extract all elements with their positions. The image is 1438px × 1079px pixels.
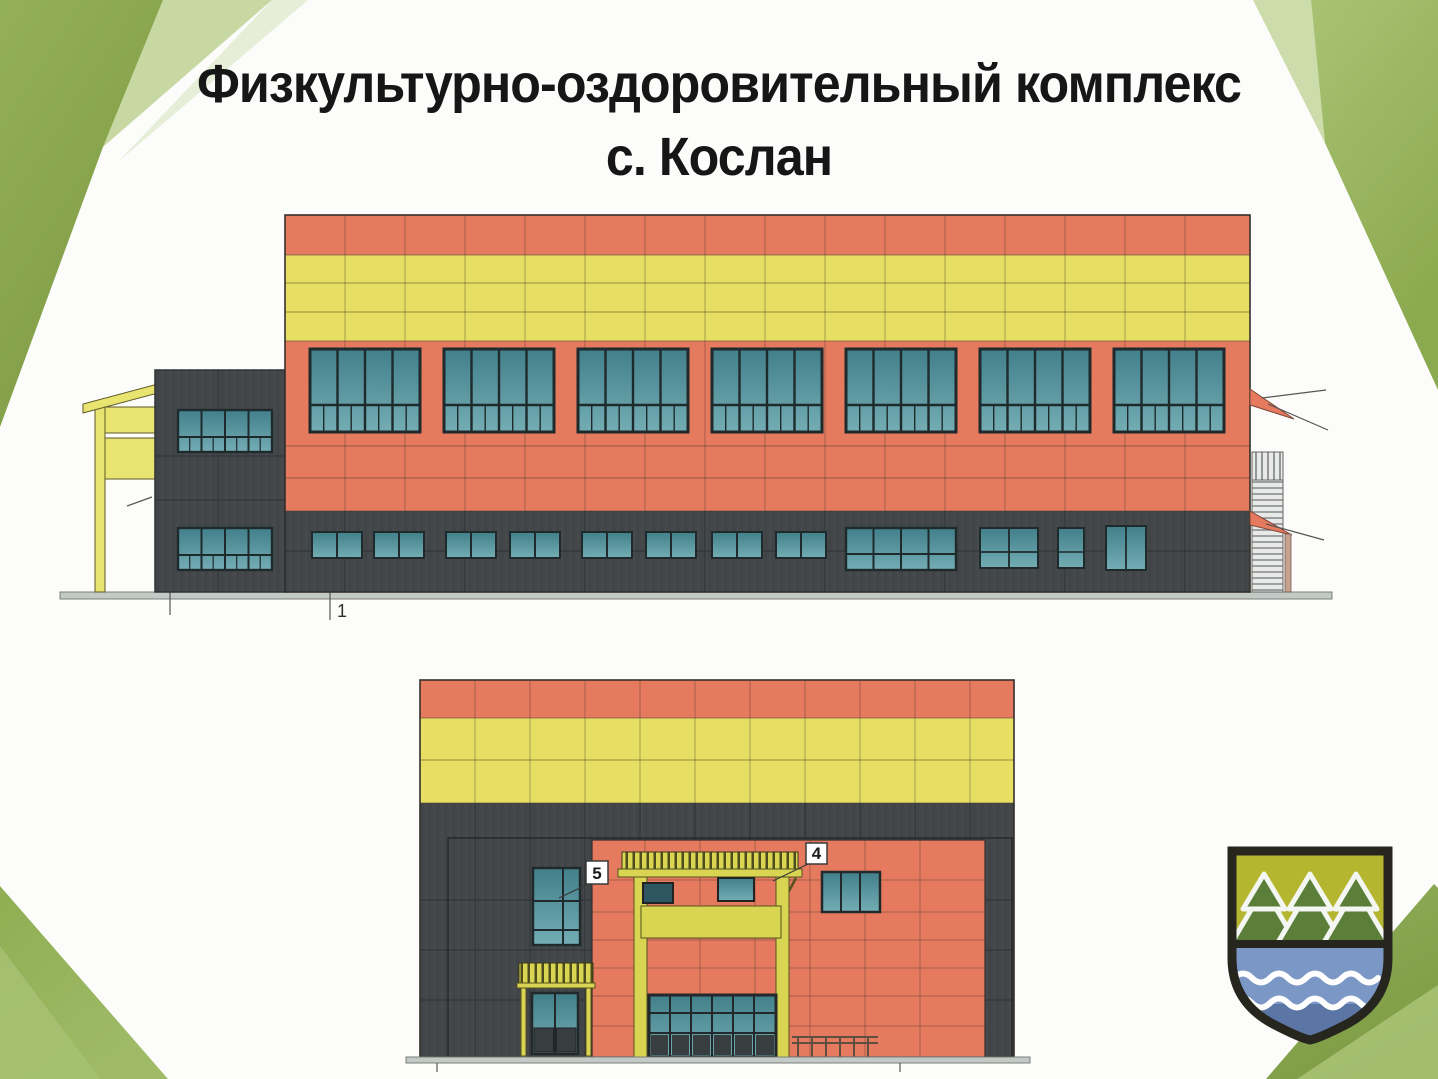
external-stair-tower [1250, 389, 1328, 592]
front-elevation-drawing: 5 4 [406, 680, 1030, 1072]
small-window [718, 878, 754, 901]
axis-marker-1: 1 [337, 601, 347, 621]
window [178, 410, 272, 452]
slide-title-line1: Физкультурно-оздоровительный комплекс [50, 48, 1387, 121]
leader-line [1268, 404, 1328, 430]
side-elevation-drawing: 1 [60, 215, 1332, 621]
window [980, 349, 1090, 432]
downpipe [1285, 534, 1291, 592]
leader-line [1262, 390, 1326, 398]
window [822, 872, 880, 912]
portal-post-right [776, 877, 789, 1057]
stair-top [1252, 452, 1283, 480]
window [1058, 528, 1084, 568]
window [374, 532, 424, 558]
koslan-coat-of-arms [1231, 851, 1389, 1046]
emblem-divider [1232, 940, 1388, 948]
porch-beam [105, 407, 155, 433]
facade-yellow-band [285, 255, 1250, 341]
annex-block [155, 370, 285, 592]
facade-orange-top [420, 680, 1014, 718]
roof-wedge [1250, 389, 1294, 419]
window [510, 532, 560, 558]
window [582, 532, 632, 558]
window [980, 528, 1038, 568]
side-door [532, 993, 578, 1054]
window [578, 349, 688, 432]
entrance-glazing [649, 995, 776, 1057]
callout-label: 5 [592, 864, 601, 883]
window [846, 349, 956, 432]
entrance-porch [83, 384, 158, 592]
corner-decor-bottom-left [0, 886, 168, 1079]
stair-ladder [1252, 480, 1283, 592]
window [646, 532, 696, 558]
window [712, 349, 822, 432]
window [1114, 349, 1224, 432]
callout-label: 4 [812, 844, 822, 863]
window [178, 528, 272, 570]
sign-band [641, 906, 781, 938]
portal-canopy-slats [622, 852, 798, 869]
leader-line [127, 497, 152, 506]
porch-column [95, 402, 105, 592]
slide: 1 [0, 0, 1438, 1079]
window [712, 532, 762, 558]
small-window [643, 883, 673, 903]
main-facade [285, 215, 1250, 592]
porch-panel [105, 438, 155, 479]
window [1106, 526, 1146, 570]
portal-canopy-fascia [618, 869, 802, 877]
slide-title: Физкультурно-оздоровительный комплекс с.… [50, 48, 1387, 194]
window [846, 528, 956, 570]
slide-title-line2: с. Кослан [50, 121, 1387, 194]
stairwell-window [533, 868, 580, 945]
window [444, 349, 554, 432]
window [312, 532, 362, 558]
ground-line [406, 1057, 1030, 1063]
ground-line [60, 592, 1332, 599]
window [446, 532, 496, 558]
window [776, 532, 826, 558]
window [310, 349, 420, 432]
